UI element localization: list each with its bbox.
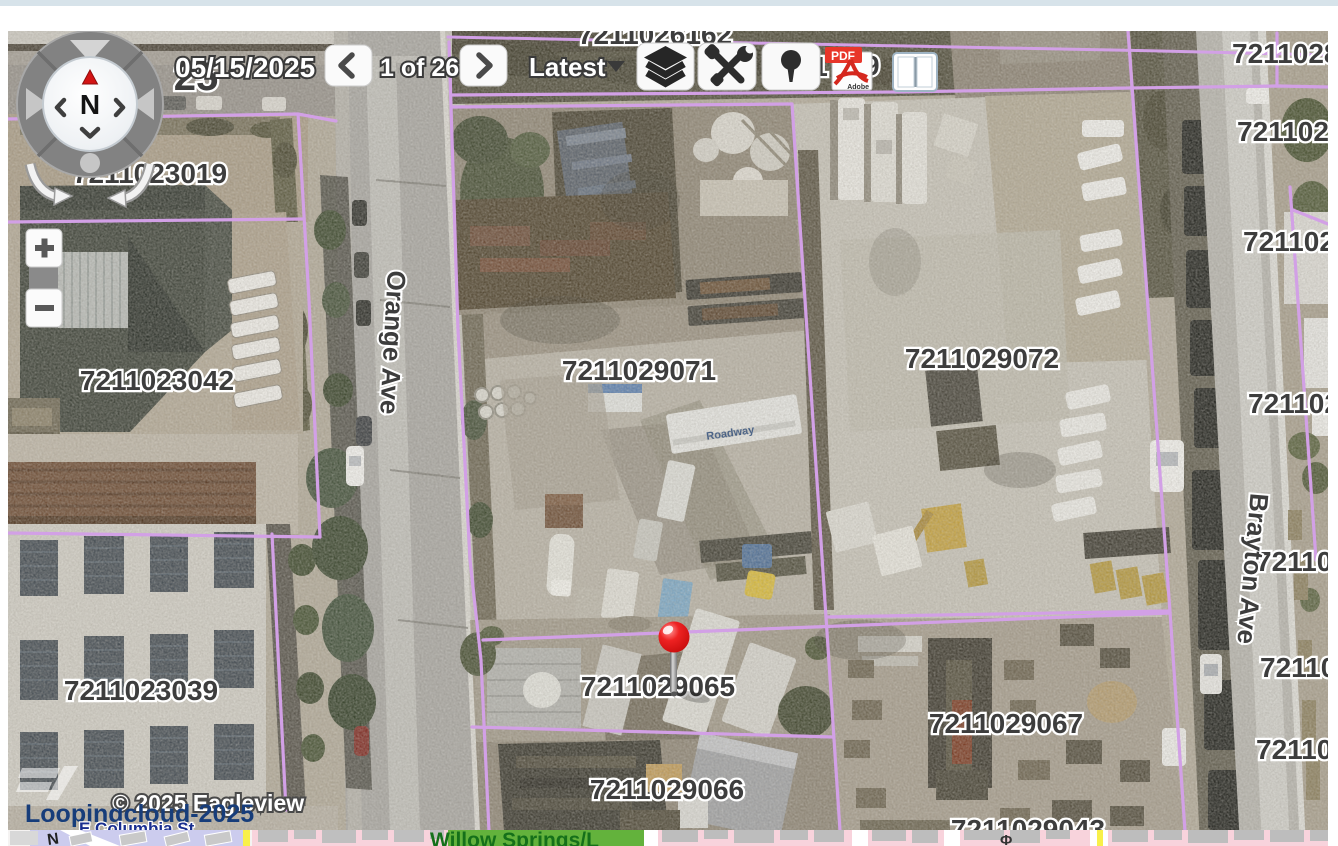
svg-text:7211029: 7211029 bbox=[1243, 226, 1338, 257]
svg-text:7211029: 7211029 bbox=[1248, 388, 1338, 419]
svg-text:7211029: 7211029 bbox=[1237, 116, 1338, 147]
svg-text:7211029: 7211029 bbox=[1256, 734, 1338, 765]
svg-text:Adobe: Adobe bbox=[847, 84, 869, 91]
svg-text:7211029071: 7211029071 bbox=[562, 355, 716, 386]
svg-text:7211029: 7211029 bbox=[1260, 652, 1338, 683]
svg-text:7211029072: 7211029072 bbox=[905, 343, 1059, 374]
svg-text:Φ: Φ bbox=[1000, 832, 1012, 846]
svg-text:1 of 26: 1 of 26 bbox=[380, 54, 459, 82]
svg-text:Latest: Latest bbox=[529, 52, 606, 82]
svg-text:7211029067: 7211029067 bbox=[929, 708, 1083, 739]
svg-text:N: N bbox=[80, 89, 100, 120]
svg-text:Willow Springs/L: Willow Springs/L bbox=[430, 829, 599, 846]
svg-text:7211023042: 7211023042 bbox=[80, 365, 234, 396]
svg-text:N: N bbox=[46, 831, 60, 846]
svg-text:7211029066: 7211029066 bbox=[590, 774, 744, 805]
svg-text:7211028: 7211028 bbox=[1232, 38, 1338, 69]
svg-text:7211023039: 7211023039 bbox=[64, 675, 218, 706]
svg-text:7211029065: 7211029065 bbox=[581, 671, 735, 702]
svg-text:05/15/2025: 05/15/2025 bbox=[175, 52, 315, 83]
